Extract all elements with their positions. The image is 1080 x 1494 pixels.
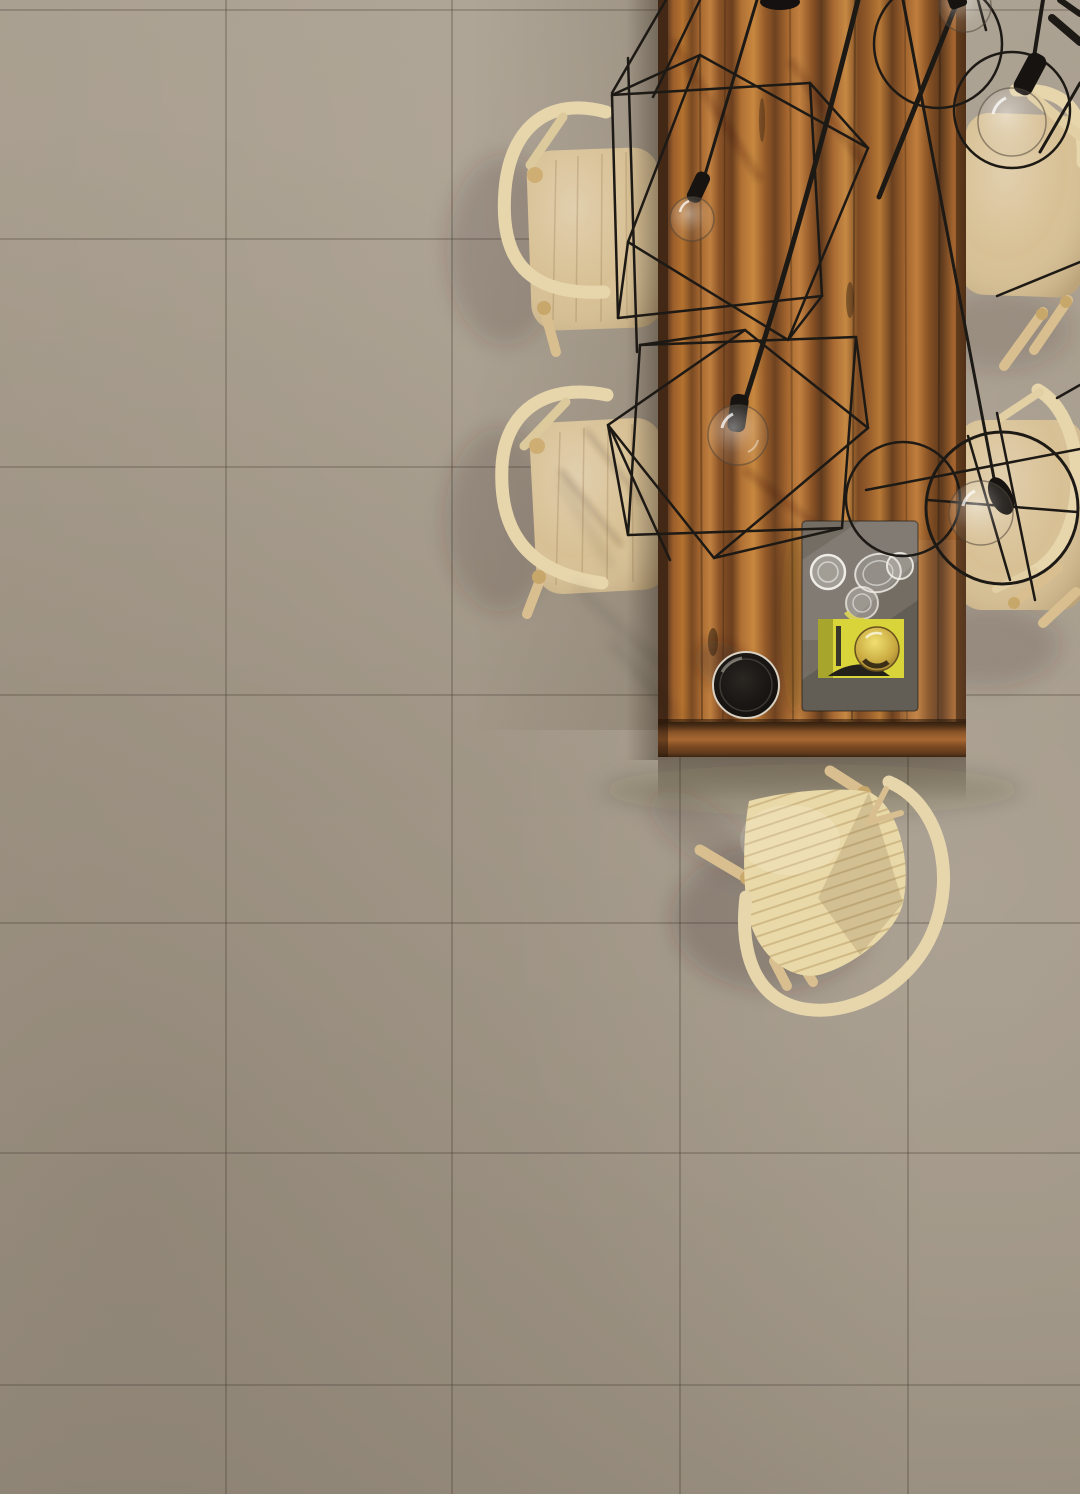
table-edge-left [658, 0, 668, 757]
bulb-glass [949, 481, 1013, 545]
chair-joint [537, 301, 551, 315]
bulb-glass [978, 88, 1046, 156]
bulb-glass [670, 197, 714, 241]
chair-joint [1008, 597, 1020, 609]
chair-joint [1060, 296, 1072, 308]
table-end-band [658, 722, 966, 757]
scene-canvas [0, 0, 1080, 1494]
booklet-art-bar [836, 626, 841, 666]
bulb-glass [708, 405, 768, 465]
wood-knot [846, 282, 854, 318]
booklet-spine [818, 619, 833, 678]
wood-knot [759, 98, 765, 142]
table-edge-right [956, 0, 966, 722]
yellow-booklet [818, 619, 904, 678]
chair-joint [532, 570, 546, 584]
seat-sheen [740, 805, 840, 875]
glass-tumbler [811, 555, 845, 589]
photo-top-down-dining-room [0, 0, 1080, 1494]
chair-joint [1036, 308, 1048, 320]
chair-joint [529, 438, 545, 454]
chair-joint [527, 167, 543, 183]
